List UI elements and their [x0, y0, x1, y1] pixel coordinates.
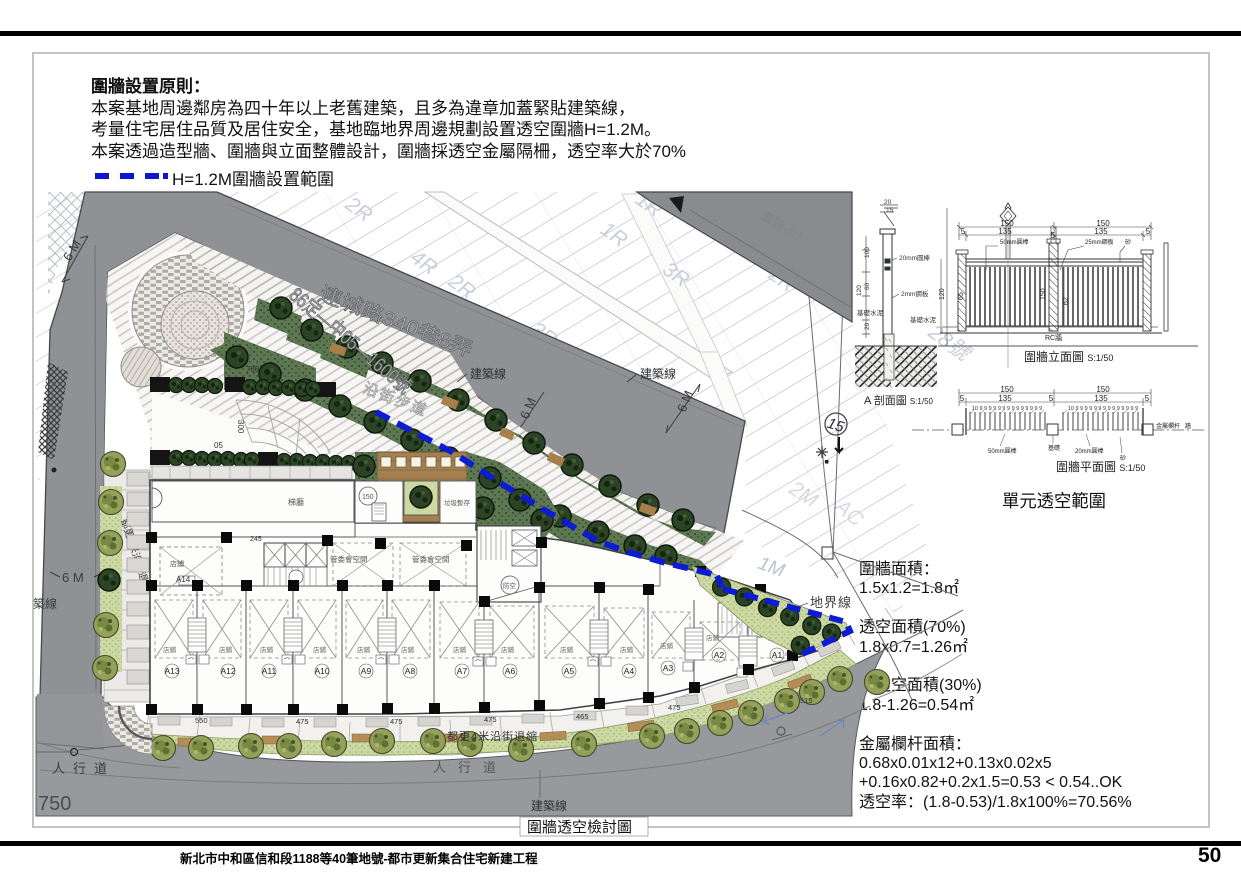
svg-text:A 剖面圖 S:1/50: A 剖面圖 S:1/50: [864, 393, 934, 407]
svg-text:圍牆立面圖 S:1/50: 圍牆立面圖 S:1/50: [1024, 349, 1113, 364]
svg-text:475: 475: [668, 703, 681, 712]
svg-text:建築線: 建築線: [640, 366, 676, 381]
svg-text:A2: A2: [714, 650, 725, 660]
svg-text:都更4米沿街退縮: 都更4米沿街退縮: [447, 729, 538, 743]
svg-text:245: 245: [250, 536, 262, 543]
svg-text:475: 475: [296, 717, 309, 726]
svg-text:05: 05: [214, 441, 223, 450]
svg-text:A9: A9: [361, 666, 372, 676]
svg-text:RC牆: RC牆: [1045, 333, 1062, 342]
svg-text:750: 750: [38, 793, 71, 815]
svg-text:店鋪: 店鋪: [401, 645, 415, 654]
svg-text:人行道: 人行道: [433, 760, 508, 775]
svg-text:5: 5: [1145, 394, 1150, 403]
svg-text:25mm鋼板: 25mm鋼板: [1085, 238, 1114, 246]
svg-text:管委會空間: 管委會空間: [412, 554, 450, 564]
svg-text:金屬欄杆: 金屬欄杆: [1156, 422, 1180, 430]
svg-text:砂: 砂: [1120, 454, 1126, 462]
svg-text:20: 20: [864, 322, 871, 330]
svg-text:基礎: 基礎: [1048, 444, 1060, 452]
svg-text:A11: A11: [262, 666, 277, 676]
svg-text:店鋪: 店鋪: [260, 645, 274, 654]
svg-text:A14: A14: [176, 575, 191, 584]
svg-text:店鋪: 店鋪: [560, 645, 574, 654]
svg-text:10 9 9 9 9 9 9 9 9 9 9 9 9 9 9: 10 9 9 9 9 9 9 9 9 9 9 9 9 9 9: [1068, 406, 1138, 412]
svg-text:60: 60: [864, 282, 871, 290]
svg-text:A6: A6: [505, 666, 516, 676]
svg-text:地界線: 地界線: [810, 595, 852, 610]
svg-text:150: 150: [1000, 385, 1014, 394]
svg-text:465: 465: [576, 712, 589, 721]
svg-text:圍牆透空檢討圖: 圍牆透空檢討圖: [527, 819, 632, 836]
svg-text:店鋪: 店鋪: [313, 645, 327, 654]
svg-text:人行道: 人行道: [52, 761, 115, 776]
svg-text:5: 5: [1049, 394, 1054, 403]
svg-text:135: 135: [1094, 227, 1108, 236]
svg-text:550: 550: [195, 716, 208, 725]
svg-text:65: 65: [958, 292, 965, 300]
svg-text:A13: A13: [164, 666, 179, 676]
svg-text:120: 120: [856, 285, 863, 296]
svg-text:店鋪: 店鋪: [357, 645, 371, 654]
svg-text:基礎水泥: 基礎水泥: [910, 315, 937, 324]
svg-text:5: 5: [1146, 227, 1151, 236]
svg-text:50mm圓棒: 50mm圓棒: [1000, 238, 1029, 246]
svg-text:A12: A12: [220, 666, 235, 676]
svg-text:店鋪: 店鋪: [660, 641, 674, 650]
svg-text:5: 5: [1051, 231, 1056, 240]
svg-text:店鋪: 店鋪: [501, 645, 515, 654]
svg-text:防空: 防空: [503, 581, 517, 590]
svg-text:A1: A1: [772, 650, 783, 660]
svg-text:5: 5: [960, 394, 965, 403]
svg-text:築線: 築線: [33, 596, 57, 611]
svg-text:店鋪: 店鋪: [453, 645, 467, 654]
svg-text:780: 780: [246, 365, 260, 374]
svg-text:150: 150: [1040, 288, 1047, 300]
svg-text:2mm鋼板: 2mm鋼板: [901, 289, 929, 298]
svg-text:垃圾暫存: 垃圾暫存: [444, 498, 471, 507]
svg-text:建築線: 建築線: [531, 798, 567, 813]
svg-text:15: 15: [886, 207, 894, 214]
svg-text:300: 300: [236, 420, 245, 434]
svg-text:20: 20: [884, 199, 892, 206]
svg-text:店鋪: 店鋪: [170, 559, 184, 568]
svg-text:砂: 砂: [1125, 238, 1131, 246]
svg-text:A3: A3: [663, 663, 674, 673]
svg-text:店鋪: 店鋪: [620, 645, 634, 654]
svg-text:建築線: 建築線: [470, 366, 506, 381]
svg-text:150: 150: [362, 494, 374, 501]
svg-text:店鋪: 店鋪: [706, 633, 720, 642]
svg-text:515: 515: [800, 696, 813, 705]
svg-text:5: 5: [961, 227, 966, 236]
svg-text:基礎水泥: 基礎水泥: [857, 308, 884, 317]
svg-text:135: 135: [998, 394, 1012, 403]
svg-text:475: 475: [390, 717, 403, 726]
svg-text:475: 475: [484, 715, 497, 724]
svg-text:10 9 9 9 9 9 9 9 9 9 9 9 9 9 9: 10 9 9 9 9 9 9 9 9 9 9 9 9 9 9: [972, 406, 1042, 412]
svg-text:牆: 牆: [1185, 422, 1191, 430]
svg-text:135: 135: [998, 227, 1012, 236]
svg-text:135: 135: [1094, 394, 1108, 403]
svg-text:6 M: 6 M: [62, 570, 84, 585]
svg-text:店鋪: 店鋪: [163, 645, 177, 654]
svg-text:150: 150: [1096, 385, 1110, 394]
svg-text:A8: A8: [405, 666, 416, 676]
svg-text:20mm圓棒: 20mm圓棒: [899, 253, 931, 262]
svg-text:A10: A10: [314, 666, 329, 676]
svg-text:A4: A4: [624, 666, 635, 676]
svg-text:管委會空間: 管委會空間: [330, 554, 368, 564]
svg-text:店鋪: 店鋪: [219, 645, 233, 654]
svg-text:A5: A5: [564, 666, 575, 676]
svg-text:圍牆平面圖 S:1/50: 圍牆平面圖 S:1/50: [1056, 459, 1145, 474]
svg-text:20mm圓棒: 20mm圓棒: [1075, 447, 1104, 455]
svg-text:梯廳: 梯廳: [288, 497, 304, 507]
svg-text:100: 100: [864, 247, 871, 258]
svg-text:A7: A7: [457, 666, 468, 676]
svg-text:120: 120: [939, 288, 946, 300]
svg-text:50mm圓棒: 50mm圓棒: [988, 447, 1017, 455]
svg-text:單元透空範圍: 單元透空範圍: [1002, 491, 1106, 511]
